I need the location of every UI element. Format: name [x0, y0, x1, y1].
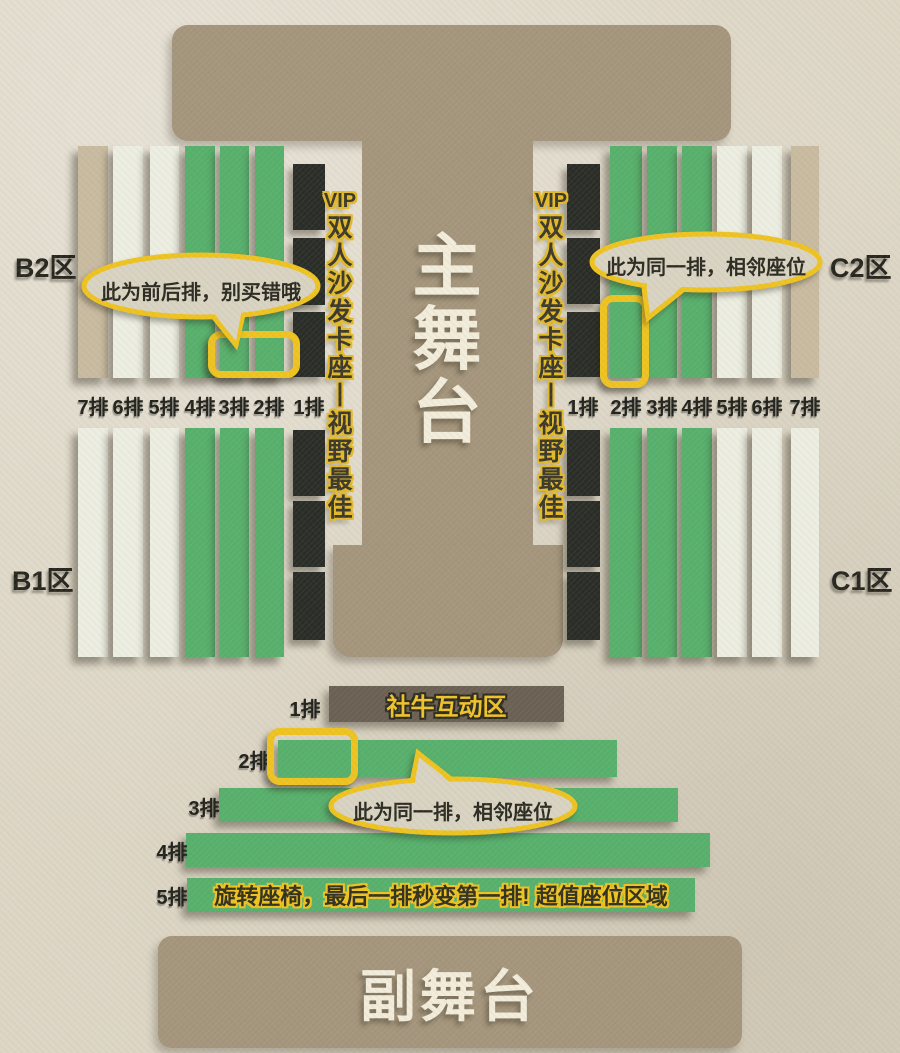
seating-chart-poster: 主舞台 VIP 双人沙发卡座丨视野最佳 VIP 双人沙发卡座丨视野最佳 B2: [0, 0, 900, 1053]
zone-label-c2: C2区: [830, 246, 892, 285]
floor-row-label-5: 5排: [142, 881, 202, 910]
floor-row-label-1: 1排: [275, 693, 335, 722]
floor-row-label-3: 3排: [174, 792, 234, 821]
zone-label-b1: B1区: [12, 559, 74, 598]
floor-row-label-4: 4排: [142, 836, 202, 865]
speech-bubble-same-row-floor-text: 此为同一排，相邻座位: [338, 796, 568, 825]
seat-column-b1-6: [113, 428, 143, 657]
seat-column-b1-2: [255, 428, 284, 657]
seat-column-c1-6: [752, 428, 782, 657]
floor-row-5: 旋转座椅，最后一排秒变第一排! 超值座位区域: [187, 878, 695, 912]
vip-sofa-seat-b1: [293, 572, 325, 640]
vip-note-title: VIP: [529, 188, 573, 214]
seat-column-c1-5: [717, 428, 747, 657]
seat-column-c1-2: [610, 428, 642, 657]
main-stage-top-bar: [172, 25, 731, 141]
vip-note-title: VIP: [318, 188, 362, 214]
main-stage-label: 主舞台: [397, 230, 497, 449]
row-label-left-1: 1排: [279, 391, 339, 420]
seat-column-b1-7: [78, 428, 108, 657]
vip-sofa-seat-c1: [567, 572, 600, 640]
main-stage-trunk-base: [333, 545, 563, 657]
row-label-right-7: 7排: [775, 391, 835, 420]
interactive-zone-label: 社牛互动区: [329, 686, 564, 722]
speech-bubble-front-back-text: 此为前后排，别买错哦: [86, 276, 316, 305]
interactive-zone-bar: 社牛互动区: [329, 686, 564, 722]
secondary-stage: 副舞台: [158, 936, 742, 1048]
vip-note-desc: 双人沙发卡座丨视野最佳: [326, 214, 354, 522]
zone-label-b2: B2区: [15, 246, 77, 285]
vip-note-desc: 双人沙发卡座丨视野最佳: [537, 214, 565, 522]
secondary-stage-label: 副舞台: [360, 952, 540, 1033]
seat-column-b1-3: [220, 428, 249, 657]
vip-note-left: VIP 双人沙发卡座丨视野最佳: [318, 188, 362, 522]
seat-column-b1-4: [185, 428, 215, 657]
floor-row-5-note: 旋转座椅，最后一排秒变第一排! 超值座位区域: [187, 878, 695, 912]
vip-note-right: VIP 双人沙发卡座丨视野最佳: [529, 188, 573, 522]
seat-column-c1-7: [791, 428, 819, 657]
speech-bubble-same-row-right-text: 此为同一排，相邻座位: [591, 251, 821, 280]
seat-column-c1-4: [682, 428, 712, 657]
floor-row-4: [186, 833, 710, 867]
seat-column-b1-5: [150, 428, 179, 657]
zone-label-c1: C1区: [831, 559, 893, 598]
seat-column-c1-3: [647, 428, 677, 657]
